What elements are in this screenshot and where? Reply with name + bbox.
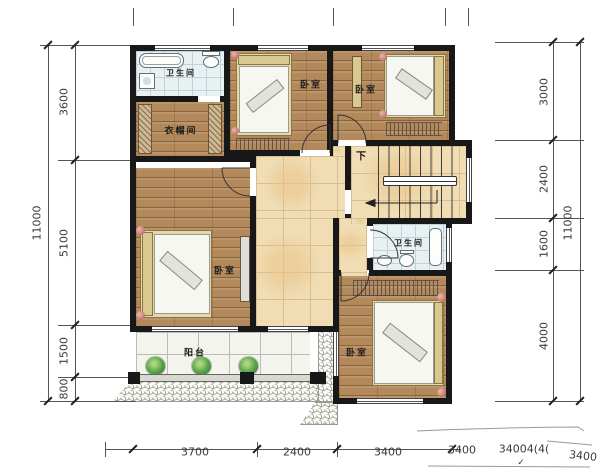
floor-plan: 卫生间 衣帽间 卧室 卧室 卧室 卫生间 卧室 阳台 下 3600 5100 1… — [0, 0, 608, 475]
door-arc-bedroom-left — [222, 168, 250, 196]
door-arc-bedroom-bottom-right — [341, 273, 369, 301]
artifact-line — [547, 441, 592, 445]
door-arc-bathroom-mid — [370, 230, 398, 258]
door-arc-bedroom-top-mid — [302, 125, 330, 153]
artifact-line — [428, 466, 590, 467]
door-arc-bedroom-top-right — [338, 115, 366, 143]
artifact-line — [417, 427, 584, 431]
stair-direction-arrow — [366, 190, 437, 207]
plan-annotations — [0, 0, 608, 475]
